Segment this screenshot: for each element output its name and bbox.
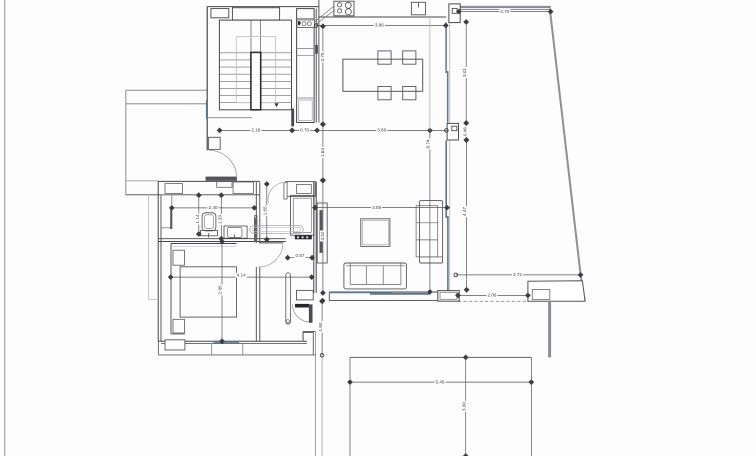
svg-text:3.59: 3.59 (372, 205, 381, 210)
svg-text:3.86: 3.86 (377, 128, 386, 133)
svg-text:1.14: 1.14 (195, 214, 200, 223)
svg-text:2.70: 2.70 (500, 9, 509, 14)
svg-text:2.18: 2.18 (251, 128, 260, 133)
svg-text:1.60: 1.60 (318, 322, 323, 331)
svg-text:3.70: 3.70 (320, 52, 325, 61)
svg-text:2.95: 2.95 (218, 285, 223, 294)
svg-text:3.86: 3.86 (375, 23, 384, 28)
svg-text:1.65: 1.65 (263, 206, 268, 215)
svg-text:3.52: 3.52 (320, 231, 325, 240)
svg-text:2.40: 2.40 (209, 205, 218, 210)
svg-text:2.06: 2.06 (488, 293, 497, 298)
svg-text:4.47: 4.47 (462, 207, 467, 216)
svg-text:8.74: 8.74 (426, 139, 431, 148)
svg-text:1.64: 1.64 (320, 148, 325, 157)
svg-text:0.70: 0.70 (300, 128, 309, 133)
svg-text:3.72: 3.72 (513, 272, 522, 277)
svg-text:3.01: 3.01 (462, 68, 467, 77)
svg-text:3.00: 3.00 (461, 402, 466, 411)
svg-text:0.46: 0.46 (463, 127, 468, 136)
svg-text:0.57: 0.57 (296, 253, 305, 258)
svg-text:1.33: 1.33 (218, 215, 223, 224)
svg-text:4.14: 4.14 (237, 273, 246, 278)
svg-text:5.45: 5.45 (436, 379, 445, 384)
